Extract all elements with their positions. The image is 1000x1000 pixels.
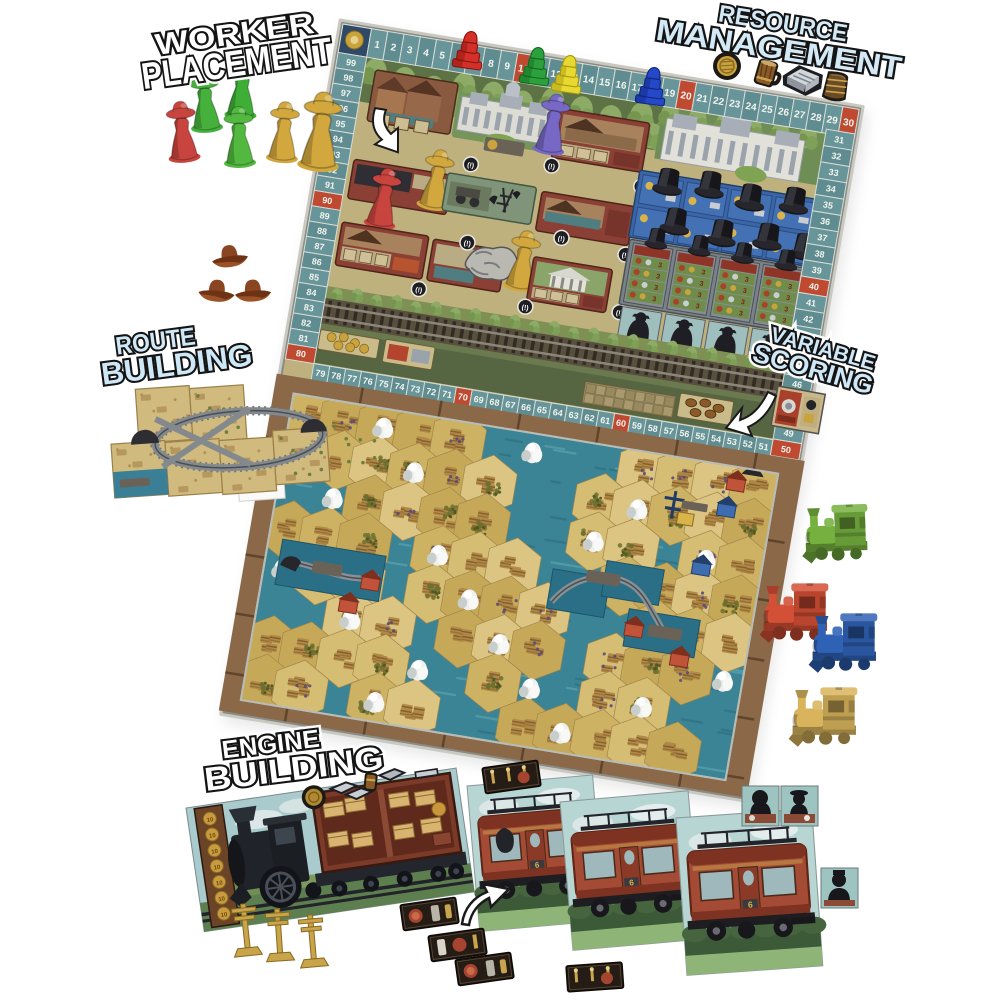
svg-text:95: 95 <box>335 118 347 129</box>
svg-text:74: 74 <box>394 381 406 392</box>
svg-text:65: 65 <box>536 404 548 415</box>
svg-text:22: 22 <box>712 96 725 109</box>
svg-text:69: 69 <box>473 394 485 405</box>
svg-text:75: 75 <box>378 378 390 389</box>
svg-text:66: 66 <box>520 402 532 413</box>
svg-text:79: 79 <box>315 368 327 379</box>
svg-text:83: 83 <box>303 302 315 313</box>
svg-text:26: 26 <box>777 106 790 119</box>
svg-text:19: 19 <box>663 87 676 100</box>
svg-text:50: 50 <box>780 444 792 455</box>
svg-text:40: 40 <box>808 281 820 292</box>
svg-text:(!): (!) <box>557 236 565 244</box>
svg-text:88: 88 <box>316 225 328 236</box>
svg-text:29: 29 <box>826 114 839 127</box>
svg-text:28: 28 <box>810 112 823 125</box>
svg-text:55: 55 <box>694 431 706 442</box>
svg-text:58: 58 <box>647 423 659 434</box>
svg-text:71: 71 <box>441 389 453 400</box>
svg-text:35: 35 <box>822 199 834 210</box>
svg-text:57: 57 <box>663 425 675 436</box>
svg-text:33: 33 <box>828 167 840 178</box>
svg-text:77: 77 <box>346 373 358 384</box>
svg-text:38: 38 <box>814 248 826 259</box>
svg-text:32: 32 <box>831 151 843 162</box>
svg-text:85: 85 <box>308 271 320 282</box>
svg-text:59: 59 <box>631 420 643 431</box>
svg-text:34: 34 <box>825 183 837 194</box>
svg-text:81: 81 <box>298 333 310 344</box>
svg-text:36: 36 <box>819 216 831 227</box>
svg-text:15: 15 <box>598 77 611 90</box>
svg-text:94: 94 <box>332 134 344 145</box>
svg-text:31: 31 <box>833 134 845 145</box>
svg-text:80: 80 <box>295 348 307 359</box>
svg-text:87: 87 <box>314 241 326 252</box>
svg-text:27: 27 <box>793 109 806 122</box>
svg-text:82: 82 <box>300 317 312 328</box>
svg-text:(!): (!) <box>466 162 474 170</box>
svg-text:68: 68 <box>489 397 501 408</box>
svg-text:42: 42 <box>803 314 815 325</box>
svg-text:97: 97 <box>340 88 352 99</box>
svg-text:24: 24 <box>745 101 758 114</box>
svg-text:91: 91 <box>324 180 336 191</box>
svg-text:72: 72 <box>425 386 437 397</box>
svg-text:99: 99 <box>345 57 357 68</box>
svg-text:(!): (!) <box>521 304 529 312</box>
svg-text:37: 37 <box>817 232 829 243</box>
svg-text:61: 61 <box>600 415 612 426</box>
svg-text:53: 53 <box>726 436 738 447</box>
svg-text:54: 54 <box>710 433 722 444</box>
svg-text:62: 62 <box>584 412 596 423</box>
svg-text:64: 64 <box>552 407 564 418</box>
svg-text:60: 60 <box>615 417 627 428</box>
svg-text:84: 84 <box>306 287 318 298</box>
svg-text:76: 76 <box>362 376 374 387</box>
svg-text:25: 25 <box>761 104 774 117</box>
svg-text:52: 52 <box>742 438 754 449</box>
svg-text:67: 67 <box>505 399 517 410</box>
svg-text:51: 51 <box>758 441 770 452</box>
svg-text:23: 23 <box>728 98 741 111</box>
svg-text:(!): (!) <box>547 163 555 171</box>
svg-text:16: 16 <box>614 79 627 92</box>
svg-text:(!): (!) <box>415 287 423 295</box>
svg-text:56: 56 <box>679 428 691 439</box>
svg-text:73: 73 <box>410 383 422 394</box>
svg-text:14: 14 <box>582 74 595 87</box>
svg-text:63: 63 <box>568 410 580 421</box>
svg-text:30: 30 <box>842 117 855 130</box>
svg-text:78: 78 <box>330 370 342 381</box>
svg-text:(!): (!) <box>463 240 471 248</box>
svg-text:98: 98 <box>343 72 355 83</box>
svg-text:86: 86 <box>311 256 323 267</box>
svg-text:70: 70 <box>457 391 469 402</box>
svg-text:21: 21 <box>696 93 709 106</box>
svg-text:39: 39 <box>811 265 823 276</box>
svg-text:89: 89 <box>319 210 331 221</box>
svg-text:20: 20 <box>679 90 692 103</box>
svg-text:90: 90 <box>322 195 334 206</box>
svg-text:41: 41 <box>805 297 817 308</box>
